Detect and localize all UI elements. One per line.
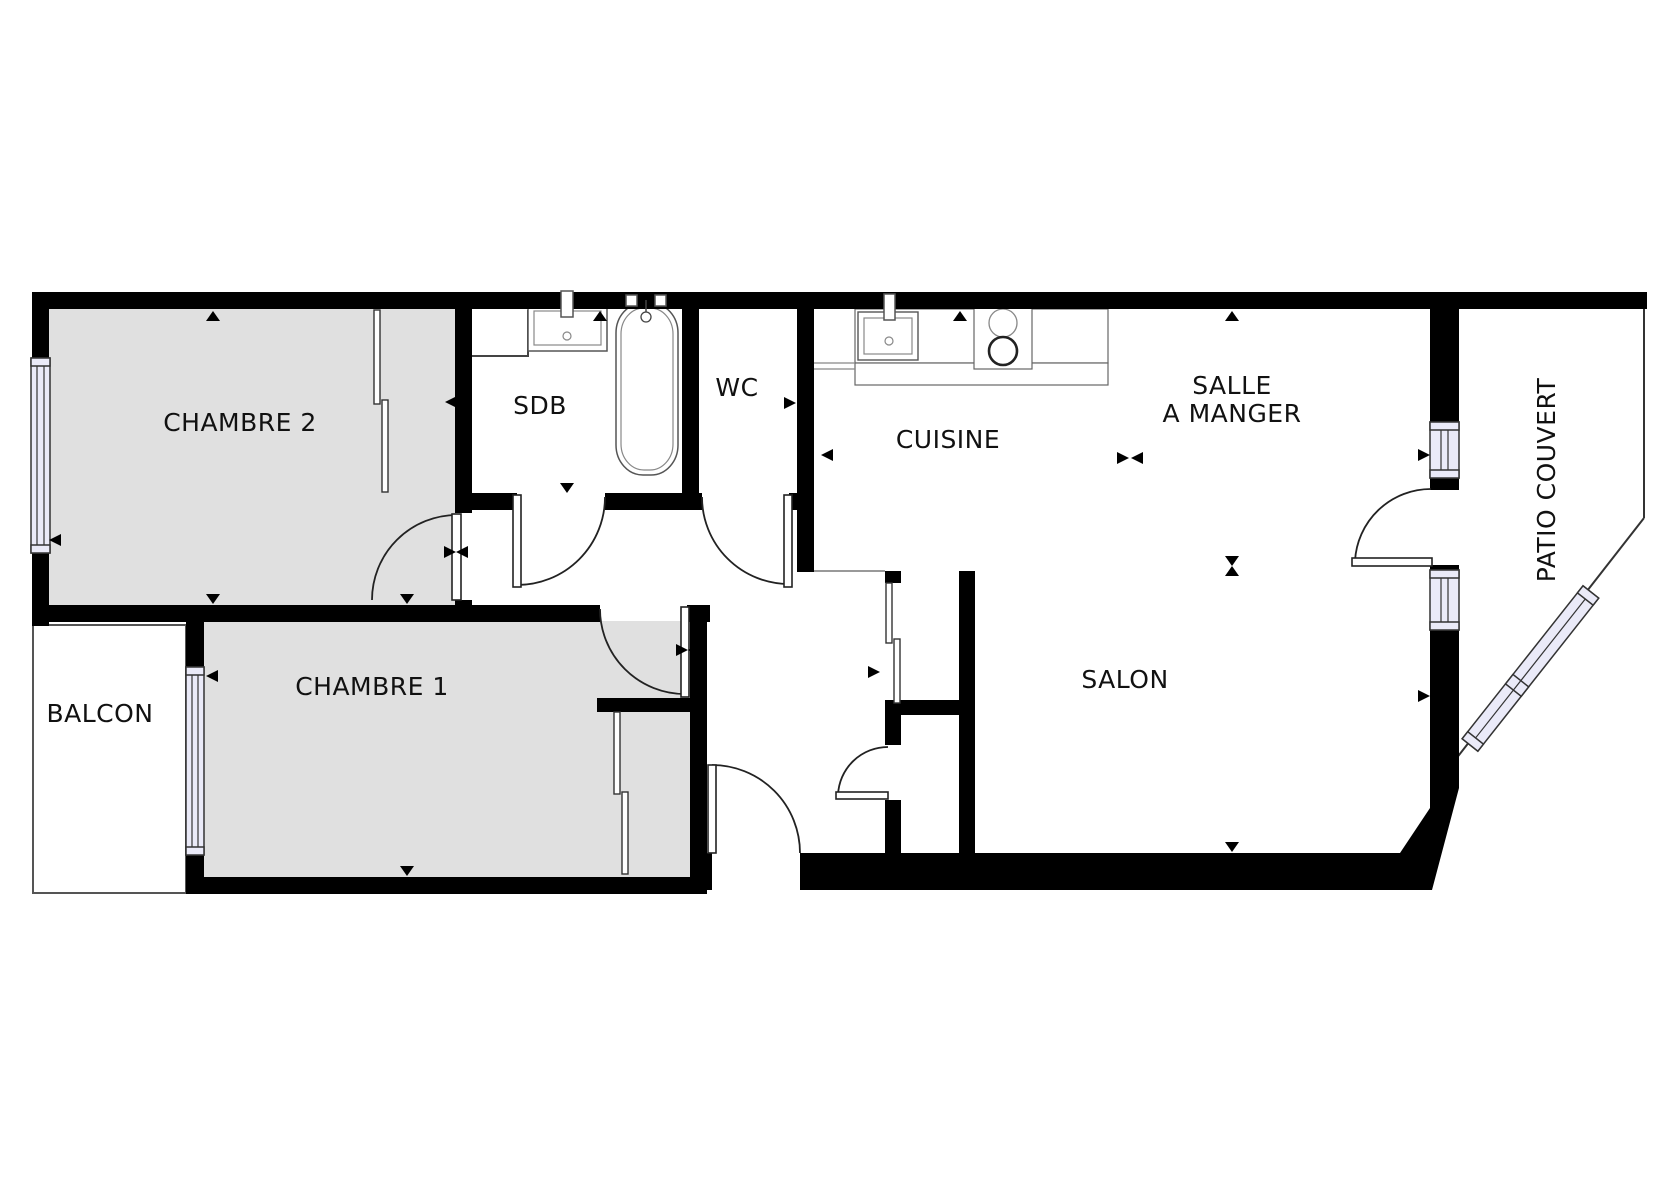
wall-ch2-right-upper	[455, 292, 472, 513]
wall-hallcloset-left-a	[885, 715, 901, 745]
wall-sdb-bottom-a	[472, 493, 517, 510]
sdb-sink-faucet	[561, 291, 573, 317]
door-sdb	[513, 495, 605, 587]
door-entry	[708, 765, 800, 853]
wall-entry-jamb	[707, 853, 712, 890]
label-cuisine: CUISINE	[896, 425, 1000, 454]
fixtures	[472, 303, 1108, 475]
wall-sdb-bottom-b	[605, 493, 702, 510]
wall-hallcloset-stub	[885, 571, 901, 583]
balcony-outline	[33, 625, 186, 893]
door-hall-closet	[836, 747, 888, 799]
bathroom-counter-line	[472, 310, 528, 356]
hourglass-sam	[1225, 556, 1239, 576]
ch1-closet-slider-2	[622, 792, 628, 874]
wall-mid-left	[32, 605, 600, 622]
bathtub	[616, 303, 678, 475]
label-chambre1: CHAMBRE 1	[295, 672, 449, 701]
label-sdb: SDB	[513, 391, 567, 420]
hall-closet-slider-1	[886, 583, 892, 643]
label-salle-line1: SALLE	[1192, 371, 1272, 400]
wall-wc-cuisine	[797, 292, 814, 572]
wall-right-a	[1430, 309, 1459, 422]
door-wc	[702, 495, 792, 587]
label-chambre2: CHAMBRE 2	[163, 408, 317, 437]
label-patio: PATIO COUVERT	[1532, 377, 1561, 582]
door-patio	[1352, 489, 1432, 566]
wall-ch1-closet-top	[597, 698, 690, 712]
ch2-wardrobe-slider-1	[374, 310, 380, 404]
wall-bottom-main	[800, 853, 1400, 890]
window-patio-diagonal	[1462, 586, 1599, 751]
label-balcon: BALCON	[46, 699, 153, 728]
kitchen-stove	[974, 303, 1032, 369]
wall-ch1-bottom	[186, 877, 707, 894]
wall-hallcloset-right	[959, 571, 975, 853]
wall-corner-diagonal	[1400, 745, 1459, 890]
chambre2-floor	[48, 308, 456, 606]
kitchen-sink-faucet	[884, 294, 895, 320]
hall-closet-slider-2	[894, 639, 900, 703]
ch1-closet-slider-1	[614, 712, 620, 794]
floor-plan-svg: CHAMBRE 2 SDB WC CUISINE SALLE A MANGER …	[0, 0, 1680, 1188]
window-salle-a-manger-2	[1430, 570, 1459, 630]
window-chambre2	[31, 358, 50, 553]
ch2-wardrobe-slider-2	[382, 400, 388, 492]
label-wc: WC	[715, 373, 758, 402]
window-chambre1	[186, 667, 204, 855]
wall-right-b	[1430, 478, 1459, 490]
label-salon: SALON	[1081, 665, 1168, 694]
bowtie-cuisine-sam	[1117, 452, 1143, 464]
wall-ch1-left-upper	[186, 605, 204, 667]
wall-sdb-wc-divider	[682, 309, 699, 493]
window-salle-a-manger-1	[1430, 422, 1459, 478]
floor-plan-page: CHAMBRE 2 SDB WC CUISINE SALLE A MANGER …	[0, 0, 1680, 1188]
wall-top	[32, 292, 1647, 309]
wall-right-d	[1430, 630, 1459, 745]
wall-ch1-left-lower	[186, 855, 204, 877]
label-salle-line2: A MANGER	[1163, 399, 1302, 428]
wall-hallcloset-left-b	[885, 800, 901, 853]
